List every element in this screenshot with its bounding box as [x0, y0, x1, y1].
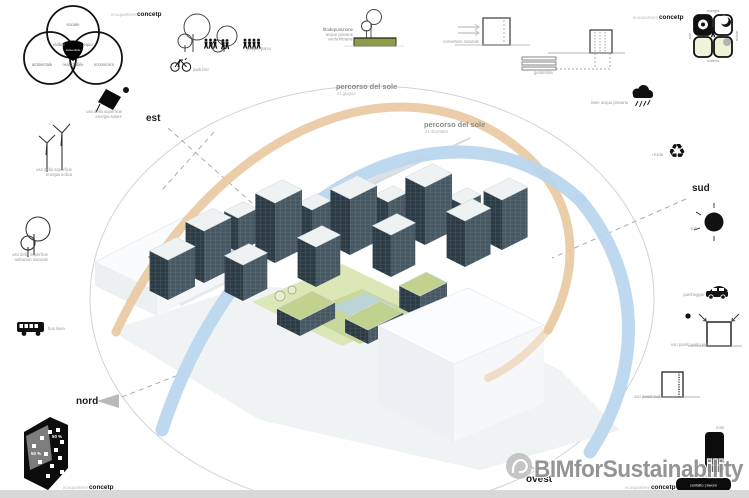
bottom-bar [0, 490, 749, 498]
walls-east-label: uso pareti vento est [671, 342, 708, 347]
watermark-text: BIMforSustainability [534, 456, 744, 483]
venn-overlap-left: vivibile [53, 42, 66, 47]
watermark-logo-icon [506, 453, 532, 479]
concept-prefix-br: ecoquartiere [625, 485, 651, 490]
legend-note-label: note [716, 425, 725, 430]
bus-label: bus linea [48, 326, 65, 331]
site-plan-pct-gray: 50 % [31, 451, 41, 456]
wind-label-2: energia eolica [46, 172, 73, 177]
concept-word-bl: concetp [89, 484, 114, 491]
compass-sud: sud [692, 183, 710, 194]
concept-prefix-tr: ecoquartiere [633, 15, 659, 20]
venn-center-label: sostenibile [66, 48, 81, 52]
natural-convector-label: convettore naturale [443, 39, 480, 44]
matrix-top-label: energia [707, 9, 719, 13]
bike-park-label: park bici [193, 67, 209, 72]
venn-overlap-right: equo [83, 42, 93, 47]
sun-label: sole [690, 226, 698, 231]
matrix-left-label: sole [688, 33, 692, 40]
compass-nord: nord [76, 396, 98, 407]
winter-path-date: 21 dicembre [425, 129, 449, 134]
matrix-right-label: acqua [735, 31, 739, 41]
poster-canvas: percorso del sole 21 giugno percorso del… [0, 0, 749, 498]
concept-prefix-tl: ecoquartiere [111, 12, 137, 17]
concept-poster: percorso del sole 21 giugno percorso del… [0, 0, 749, 498]
watermark: BIMforSustainability [506, 453, 744, 483]
summer-path-date: 21 giugno [337, 91, 356, 96]
concept-prefix-bl: ecoquartiere [63, 485, 89, 490]
concept-word-tl: concetp [137, 11, 162, 18]
venn-right-label: economico [94, 62, 115, 67]
tree-label-2: ambiente naturale [14, 257, 48, 262]
rain-water-label: linee acqua piovana [591, 100, 629, 105]
recycle-label: ricicla [652, 152, 663, 157]
geothermal-label: geotermia [534, 70, 553, 75]
venn-overlap-bottom: realizzabile [63, 62, 85, 67]
walls-south-label: uso pareti sud [634, 394, 661, 399]
winter-path-label: percorso del sole [424, 120, 485, 129]
site-plan-pct-black: 50 % [52, 434, 62, 439]
compass-est: est [146, 113, 161, 124]
legend-services-label: contatto | lavoro [690, 484, 717, 488]
matrix-bottom-label: materia [707, 59, 719, 63]
summer-path-label: percorso del sole [336, 82, 397, 91]
people-park-label: people parco [247, 46, 272, 51]
venn-left-label: ambientale [32, 62, 53, 67]
recycle-icon: ♻ [668, 139, 686, 163]
solar-label-2: energia solare [95, 114, 122, 119]
phytodepuration-sub2: verde filtrante [328, 37, 354, 42]
parking-label: parcheggio [683, 292, 704, 297]
venn-top-label: sociale [66, 22, 80, 27]
concept-word-tr: concetp [659, 14, 684, 21]
concept-word-br: concetp [651, 484, 676, 491]
